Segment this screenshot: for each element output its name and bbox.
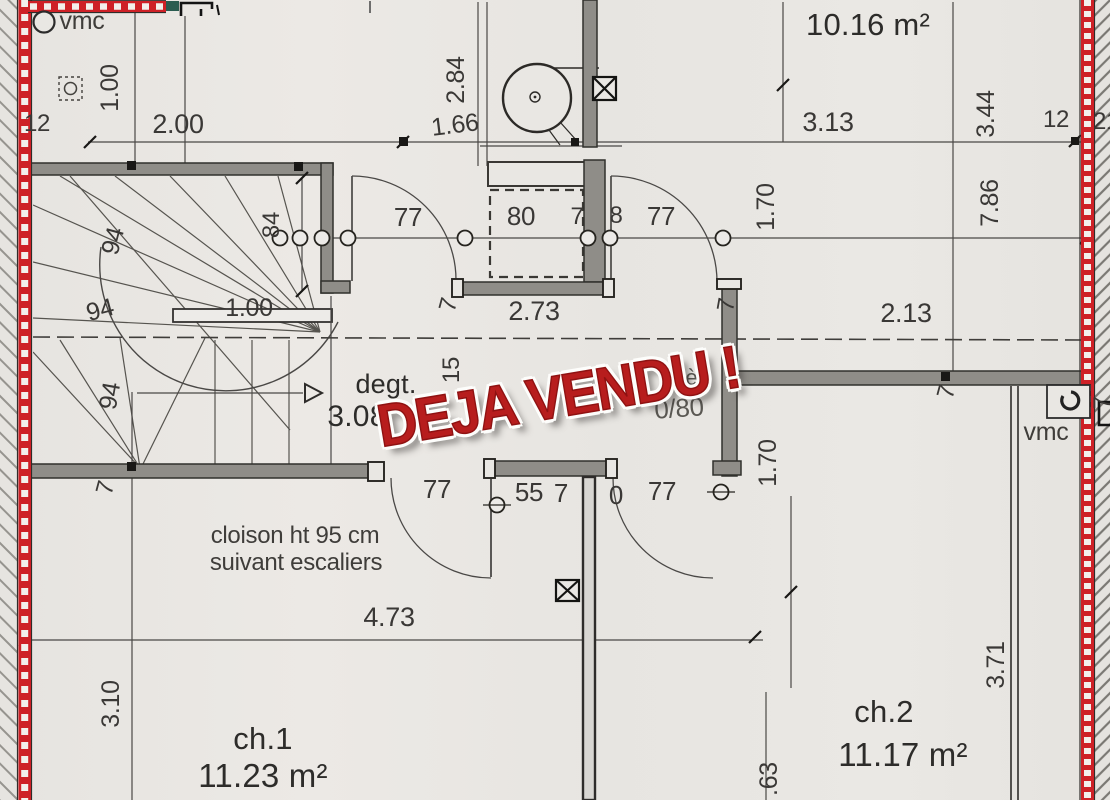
cupboard-dashed-outline	[490, 190, 583, 277]
floorplan-page: 122.001.002.841.663.133.4412217.86778078…	[0, 0, 1110, 800]
partition-center	[583, 477, 595, 800]
centerline-dashed	[33, 337, 1086, 340]
cupboard-top	[488, 162, 585, 186]
vmc-outlet-icon-left	[34, 12, 55, 33]
hatch-left	[0, 0, 17, 800]
vmc-outlet-icon-right	[1047, 385, 1090, 418]
exterior-wall-left	[18, 0, 32, 800]
partition-right	[1011, 386, 1018, 800]
ceiling-light-icon	[59, 77, 82, 100]
hatch-right	[1094, 0, 1110, 800]
staircase-landing	[173, 309, 332, 322]
stair-direction-arrow-icon	[305, 384, 322, 402]
exterior-wall-top	[28, 1, 370, 16]
